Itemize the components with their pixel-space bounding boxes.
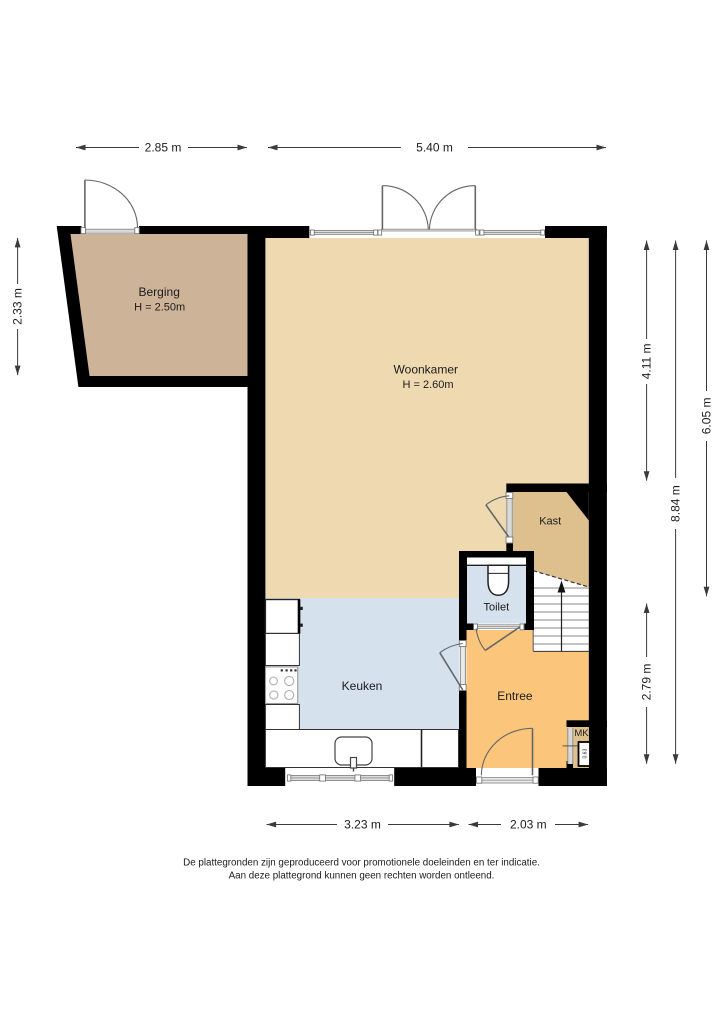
- svg-text:Kast: Kast: [539, 516, 561, 528]
- svg-text:De plattegronden zijn geproduc: De plattegronden zijn geproduceerd voor …: [183, 858, 540, 869]
- svg-text:2.85 m: 2.85 m: [145, 141, 182, 155]
- svg-text:2.33 m: 2.33 m: [11, 288, 25, 325]
- svg-text:0.63: 0.63: [583, 749, 589, 759]
- svg-text:2.03 m: 2.03 m: [510, 818, 547, 832]
- svg-text:MK: MK: [574, 728, 589, 739]
- svg-text:Keuken: Keuken: [342, 679, 383, 693]
- svg-text:Toilet: Toilet: [483, 602, 509, 614]
- svg-text:Aan deze plattegrond kunnen ge: Aan deze plattegrond kunnen geen rechten…: [229, 871, 495, 882]
- svg-text:5.40 m: 5.40 m: [416, 141, 453, 155]
- svg-text:2.79 m: 2.79 m: [640, 664, 654, 701]
- svg-text:8.84 m: 8.84 m: [669, 485, 683, 522]
- svg-text:Woonkamer: Woonkamer: [394, 363, 458, 377]
- svg-text:4.11 m: 4.11 m: [640, 343, 654, 379]
- svg-text:Berging: Berging: [139, 285, 180, 299]
- svg-text:3.23 m: 3.23 m: [344, 818, 381, 832]
- svg-text:H = 2.60m: H = 2.60m: [402, 379, 453, 391]
- svg-text:Entree: Entree: [497, 689, 533, 703]
- svg-text:6.05 m: 6.05 m: [700, 398, 714, 435]
- svg-text:H = 2.50m: H = 2.50m: [134, 302, 185, 314]
